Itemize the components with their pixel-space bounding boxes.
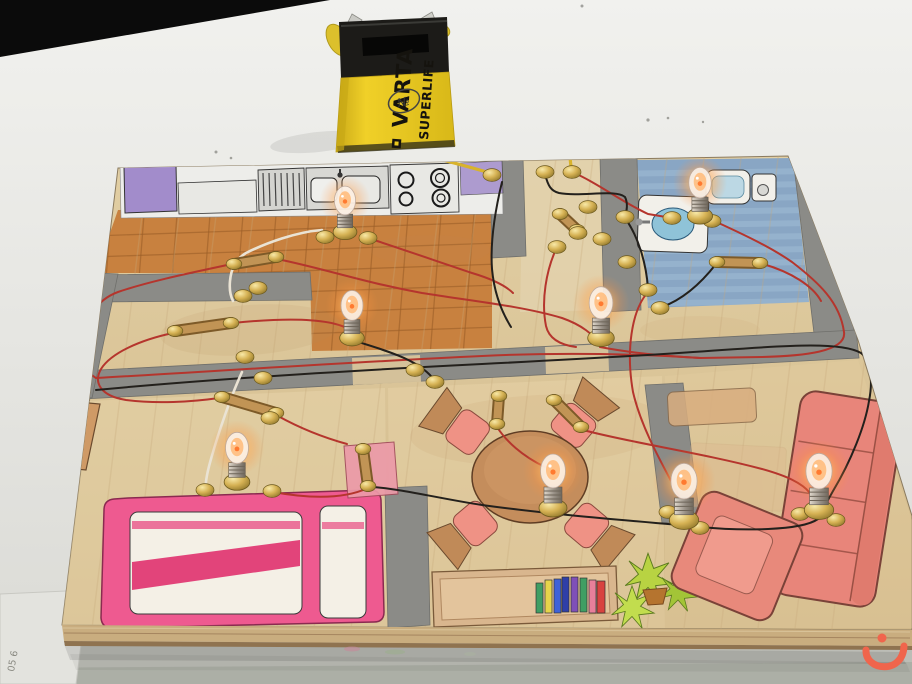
brass-fastener	[226, 258, 242, 269]
brass-fastener	[663, 212, 681, 225]
brass-fastener	[355, 443, 371, 454]
brass-fastener	[548, 241, 566, 254]
dish-rack	[258, 168, 305, 211]
brass-fastener	[618, 256, 636, 269]
bulb-filament	[816, 469, 821, 474]
brass-fastener	[268, 251, 284, 262]
brass-fastener	[536, 166, 554, 179]
coffee-table	[667, 388, 757, 427]
brass-fastener	[263, 485, 281, 498]
bulb-filament	[235, 446, 240, 451]
bulb-filament	[698, 181, 703, 186]
brass-fastener	[316, 231, 334, 244]
wall-bedroom-dining	[385, 486, 430, 628]
brass-fastener	[616, 211, 634, 224]
bed	[101, 490, 384, 628]
brass-fastener	[223, 317, 239, 328]
copper-switch	[709, 256, 768, 268]
brass-fastener	[579, 201, 597, 214]
brass-fastener	[489, 418, 505, 429]
brass-fastener	[406, 364, 424, 377]
brass-fastener	[752, 257, 768, 268]
brass-fastener	[563, 166, 581, 179]
brass-fastener	[167, 325, 183, 336]
battery: VARTA SUPERLIFE №	[321, 12, 455, 153]
kitchen-counter	[178, 180, 257, 214]
brass-fastener	[483, 169, 501, 182]
brass-fastener	[651, 302, 669, 315]
brass-fastener	[709, 256, 725, 267]
screenshot: 05 6	[0, 0, 912, 684]
toilet	[752, 174, 776, 201]
stove	[390, 163, 459, 214]
fridge	[124, 165, 177, 213]
bulb-filament	[681, 479, 686, 484]
brass-fastener	[214, 391, 230, 402]
brass-fastener	[359, 232, 377, 245]
brass-fastener	[593, 233, 611, 246]
brass-fastener	[261, 412, 279, 425]
brass-fastener	[426, 376, 444, 389]
brass-fastener	[234, 290, 252, 303]
bulb-filament	[350, 304, 355, 309]
bulb-filament	[550, 469, 555, 474]
brass-fastener	[254, 372, 272, 385]
brass-fastener	[552, 208, 568, 219]
scene-photo: 05 6	[0, 0, 912, 684]
bookshelf	[432, 566, 618, 627]
brass-fastener	[196, 484, 214, 497]
bulb-filament	[599, 301, 604, 306]
brass-fastener	[546, 394, 562, 405]
brass-fastener	[569, 227, 587, 240]
brass-fastener	[491, 390, 507, 401]
bulb-filament	[343, 199, 347, 203]
brass-fastener	[360, 480, 376, 491]
brass-fastener	[639, 284, 657, 297]
brass-fastener	[236, 351, 254, 364]
wall-kitchen-south	[93, 272, 312, 302]
brass-fastener	[573, 421, 589, 432]
brass-fastener	[249, 282, 267, 295]
